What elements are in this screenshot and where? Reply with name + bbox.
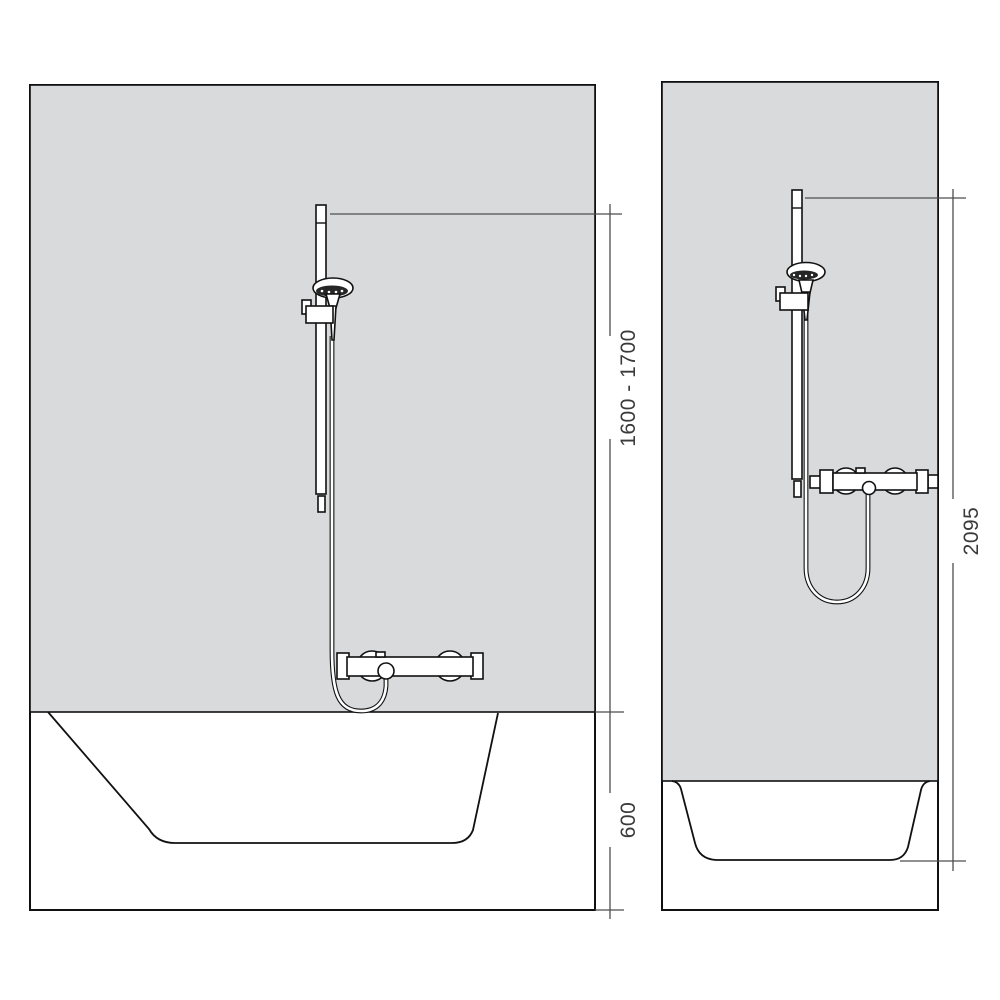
nozzle-dot xyxy=(341,290,344,293)
nozzle-dot xyxy=(811,274,813,276)
slider-holder xyxy=(780,293,808,310)
wall-union xyxy=(928,475,938,488)
front-wall xyxy=(30,85,595,712)
thermostat-body xyxy=(347,657,473,676)
wall-bar xyxy=(792,190,802,479)
hose-outlet xyxy=(863,482,876,495)
wall-bar-lower-end xyxy=(318,496,325,512)
dimension-label-tub-height: 600 xyxy=(617,802,640,839)
thermostat-button xyxy=(856,468,865,473)
side-view: 2095 xyxy=(662,82,983,910)
nozzle-dot xyxy=(805,275,807,277)
technical-drawing-page: 1600 - 1700 600 xyxy=(0,0,1000,1000)
nozzle-dot xyxy=(321,290,324,293)
wall-bar xyxy=(316,205,326,494)
slider-holder xyxy=(306,306,333,323)
hose-outlet xyxy=(378,663,394,679)
hand-shower-neck xyxy=(799,280,813,293)
nozzle-dot xyxy=(799,275,801,277)
front-view: 1600 - 1700 600 xyxy=(30,85,640,919)
nozzle-dot xyxy=(335,291,338,294)
dimension-label-bar-height: 1600 - 1700 xyxy=(617,329,640,447)
wall-bar-lower-end xyxy=(794,481,801,497)
dimension-front-tub-height: 600 xyxy=(595,802,640,919)
thermostat-cap-left xyxy=(820,470,833,493)
thermostat-button xyxy=(376,652,385,657)
nozzle-dot xyxy=(328,291,331,294)
dimension-label-overall-height: 2095 xyxy=(960,507,983,556)
installation-diagram: 1600 - 1700 600 xyxy=(0,0,1000,1000)
nozzle-dot xyxy=(793,274,795,276)
